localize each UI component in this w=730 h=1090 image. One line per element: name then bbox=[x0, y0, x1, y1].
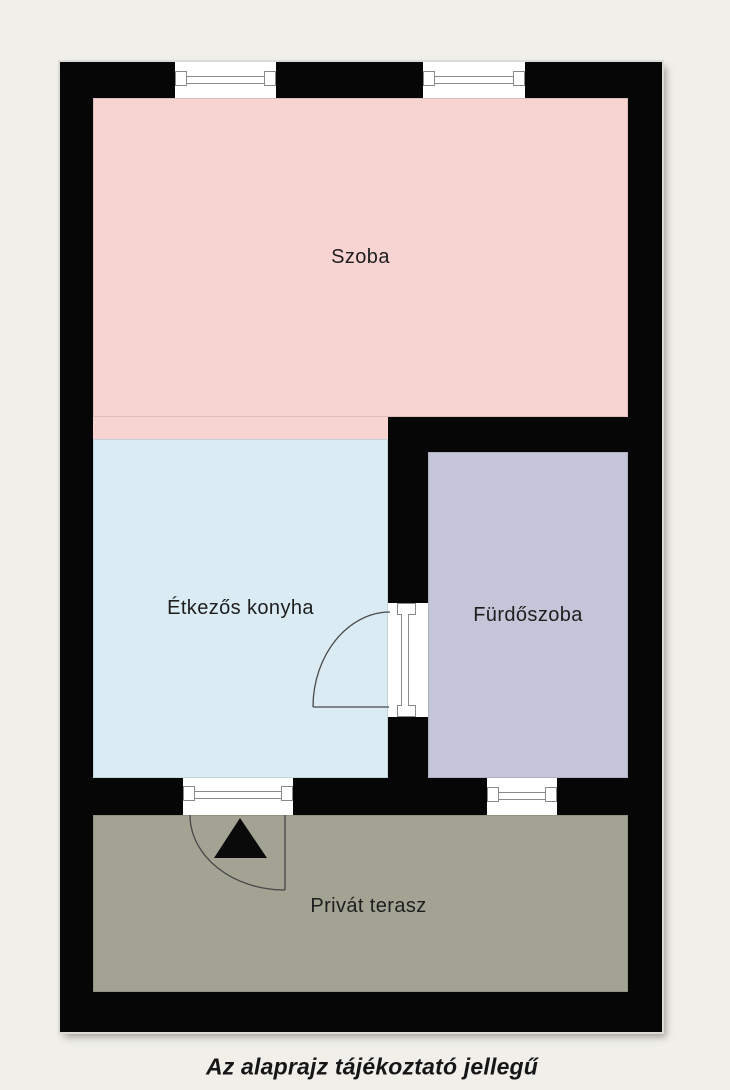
plan-annotations bbox=[60, 62, 662, 1032]
entrance-arrow-icon bbox=[214, 818, 267, 858]
plan-caption: Az alaprajz tájékoztató jellegű bbox=[206, 1054, 538, 1081]
floor-plan: Szoba Étkezős konyha Fürdőszoba Privát t… bbox=[60, 62, 662, 1032]
door-swing-icon bbox=[313, 612, 390, 707]
page: Szoba Étkezős konyha Fürdőszoba Privát t… bbox=[0, 0, 730, 1090]
